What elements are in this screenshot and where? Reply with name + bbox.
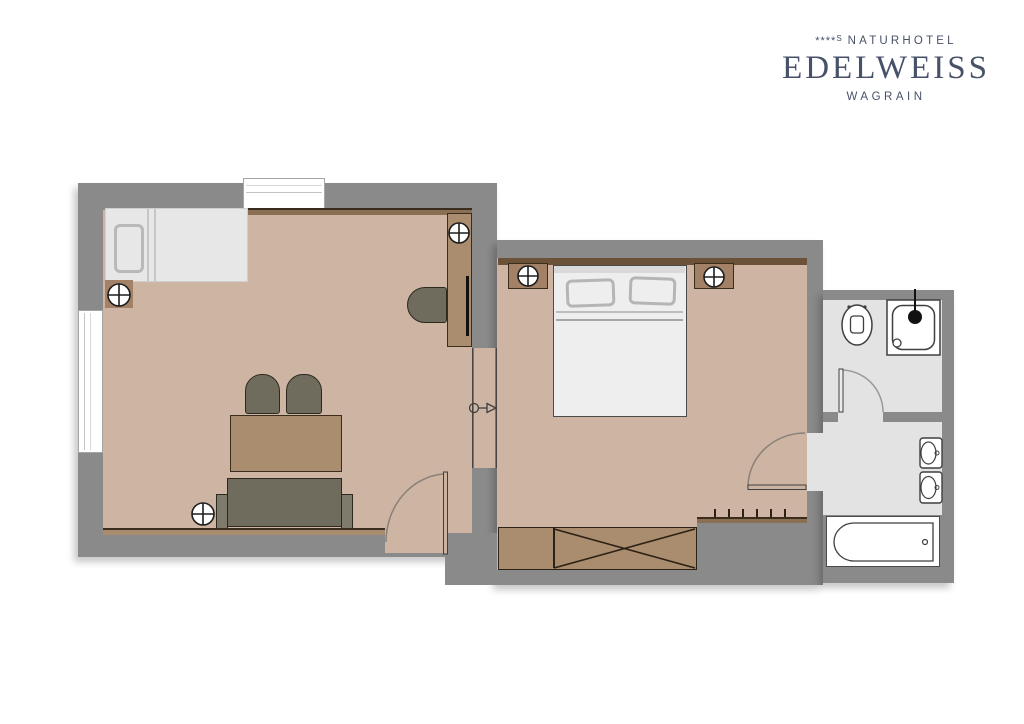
- entry-wall-pier: [445, 533, 497, 585]
- desk-chair: [407, 287, 447, 323]
- corner-outlet-pad: [105, 280, 133, 308]
- coat-hook: [770, 509, 772, 517]
- coat-hook: [756, 509, 758, 517]
- sofa-armrest: [341, 494, 353, 530]
- wc-door-opening: [838, 412, 883, 422]
- nightstand-left: [508, 263, 548, 289]
- hotel-logo: ****SNATURHOTEL EDELWEISS WAGRAIN: [772, 34, 1000, 103]
- sofa-seat: [227, 478, 342, 527]
- coat-hook: [714, 509, 716, 517]
- logo-category-line: ****SNATURHOTEL: [772, 34, 1000, 47]
- hotel-location: WAGRAIN: [772, 91, 1000, 103]
- daybed-armrest-line: [154, 209, 156, 281]
- bedroom-bath-door-opening: [807, 433, 823, 491]
- duvet-fold-line: [556, 311, 683, 313]
- daybed-armrest-line: [147, 209, 149, 281]
- wc-floor: [823, 300, 942, 412]
- vanity-floor: [823, 422, 942, 515]
- window-mullion: [246, 185, 322, 186]
- tv: [466, 276, 469, 336]
- bench-rail: [697, 517, 807, 523]
- sofa-armrest: [216, 494, 228, 530]
- floor-plan-page: ****SNATURHOTEL EDELWEISS WAGRAIN: [0, 0, 1024, 724]
- dining-chair: [245, 374, 280, 414]
- star-rating-suffix: S: [836, 34, 842, 43]
- wall-sideboard: [248, 208, 472, 215]
- dining-chair: [286, 374, 322, 414]
- daybed: [105, 208, 248, 282]
- window-mullion: [246, 192, 322, 193]
- bed-head-strip: [554, 266, 685, 273]
- wardrobe: [498, 527, 697, 570]
- room-passage-floor: [472, 348, 497, 468]
- daybed-pillow: [114, 224, 144, 273]
- window-mullion: [84, 313, 85, 450]
- coat-hook: [742, 509, 744, 517]
- bed-pillow: [629, 276, 677, 306]
- bathtub: [826, 516, 940, 567]
- nightstand-right: [694, 263, 734, 289]
- coat-hook: [728, 509, 730, 517]
- left-window: [78, 310, 103, 453]
- entrance-door-bay: [385, 533, 445, 553]
- double-bed: [553, 265, 687, 417]
- sofa: [216, 478, 353, 530]
- bottom-sideboard: [103, 528, 385, 535]
- coat-hook: [784, 509, 786, 517]
- star-rating-icon: ****: [815, 35, 836, 47]
- dining-table: [230, 415, 342, 472]
- wardrobe-divider: [553, 528, 555, 568]
- top-window: [243, 178, 325, 210]
- window-mullion: [90, 313, 91, 450]
- hotel-name: EDELWEISS: [772, 50, 1000, 87]
- hotel-type-label: NATURHOTEL: [848, 35, 957, 47]
- duvet-fold-line: [556, 319, 683, 321]
- bed-pillow: [566, 278, 616, 308]
